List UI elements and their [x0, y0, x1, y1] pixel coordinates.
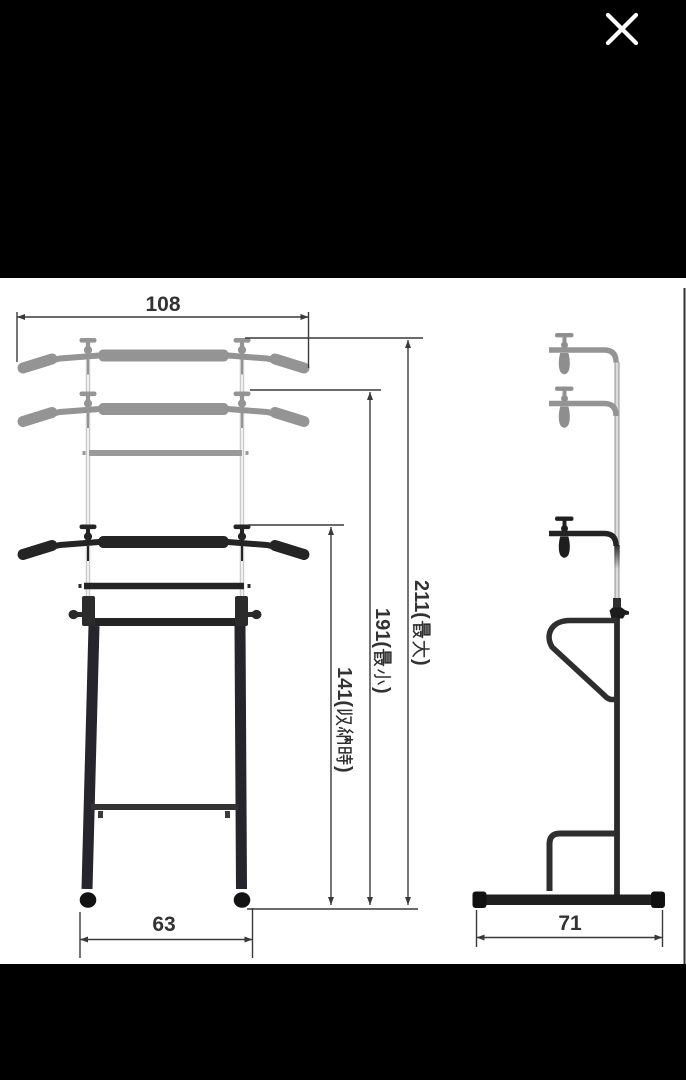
svg-text:71: 71: [558, 912, 582, 935]
svg-text:191(: 191(: [371, 608, 393, 648]
svg-text:): ): [333, 766, 355, 773]
svg-text:): ): [371, 687, 393, 694]
svg-text:211(: 211(: [410, 580, 432, 619]
svg-text:108: 108: [145, 293, 180, 316]
svg-text:141(: 141(: [333, 667, 355, 707]
svg-text:): ): [410, 659, 432, 666]
svg-text:63: 63: [152, 913, 175, 936]
